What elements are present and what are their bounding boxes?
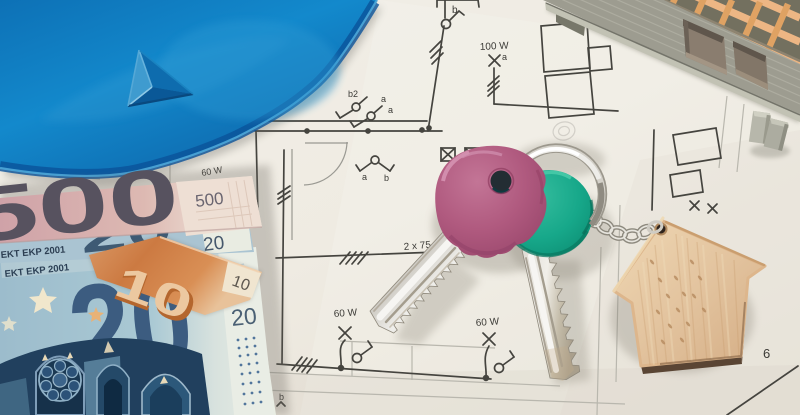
- svg-text:b2: b2: [348, 89, 358, 99]
- svg-text:a: a: [381, 94, 386, 104]
- svg-text:a: a: [388, 105, 393, 115]
- svg-text:500: 500: [194, 189, 224, 211]
- svg-text:60 W: 60 W: [475, 316, 500, 329]
- svg-text:b: b: [384, 173, 389, 183]
- svg-text:60 W: 60 W: [333, 307, 358, 320]
- svg-text:6: 6: [763, 346, 770, 361]
- svg-text:a: a: [362, 172, 367, 182]
- svg-text:b: b: [452, 5, 458, 16]
- svg-text:20: 20: [230, 302, 258, 331]
- svg-text:a: a: [502, 52, 507, 62]
